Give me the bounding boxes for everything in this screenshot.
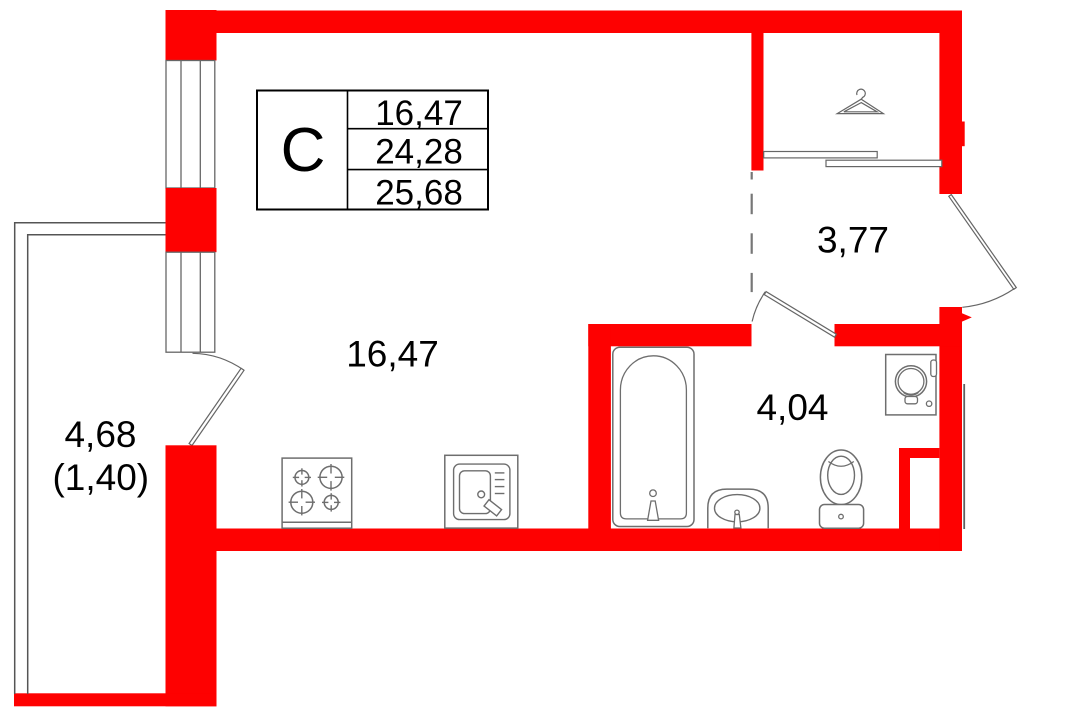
- svg-text:4,04: 4,04: [756, 387, 828, 428]
- svg-text:C: C: [281, 116, 326, 185]
- svg-text:4,68: 4,68: [64, 414, 136, 455]
- svg-text:3,77: 3,77: [817, 220, 889, 261]
- svg-text:16,47: 16,47: [346, 334, 439, 375]
- svg-text:24,28: 24,28: [375, 133, 463, 172]
- svg-text:25,68: 25,68: [375, 173, 463, 212]
- svg-text:(1,40): (1,40): [52, 457, 149, 498]
- svg-text:16,47: 16,47: [375, 94, 463, 133]
